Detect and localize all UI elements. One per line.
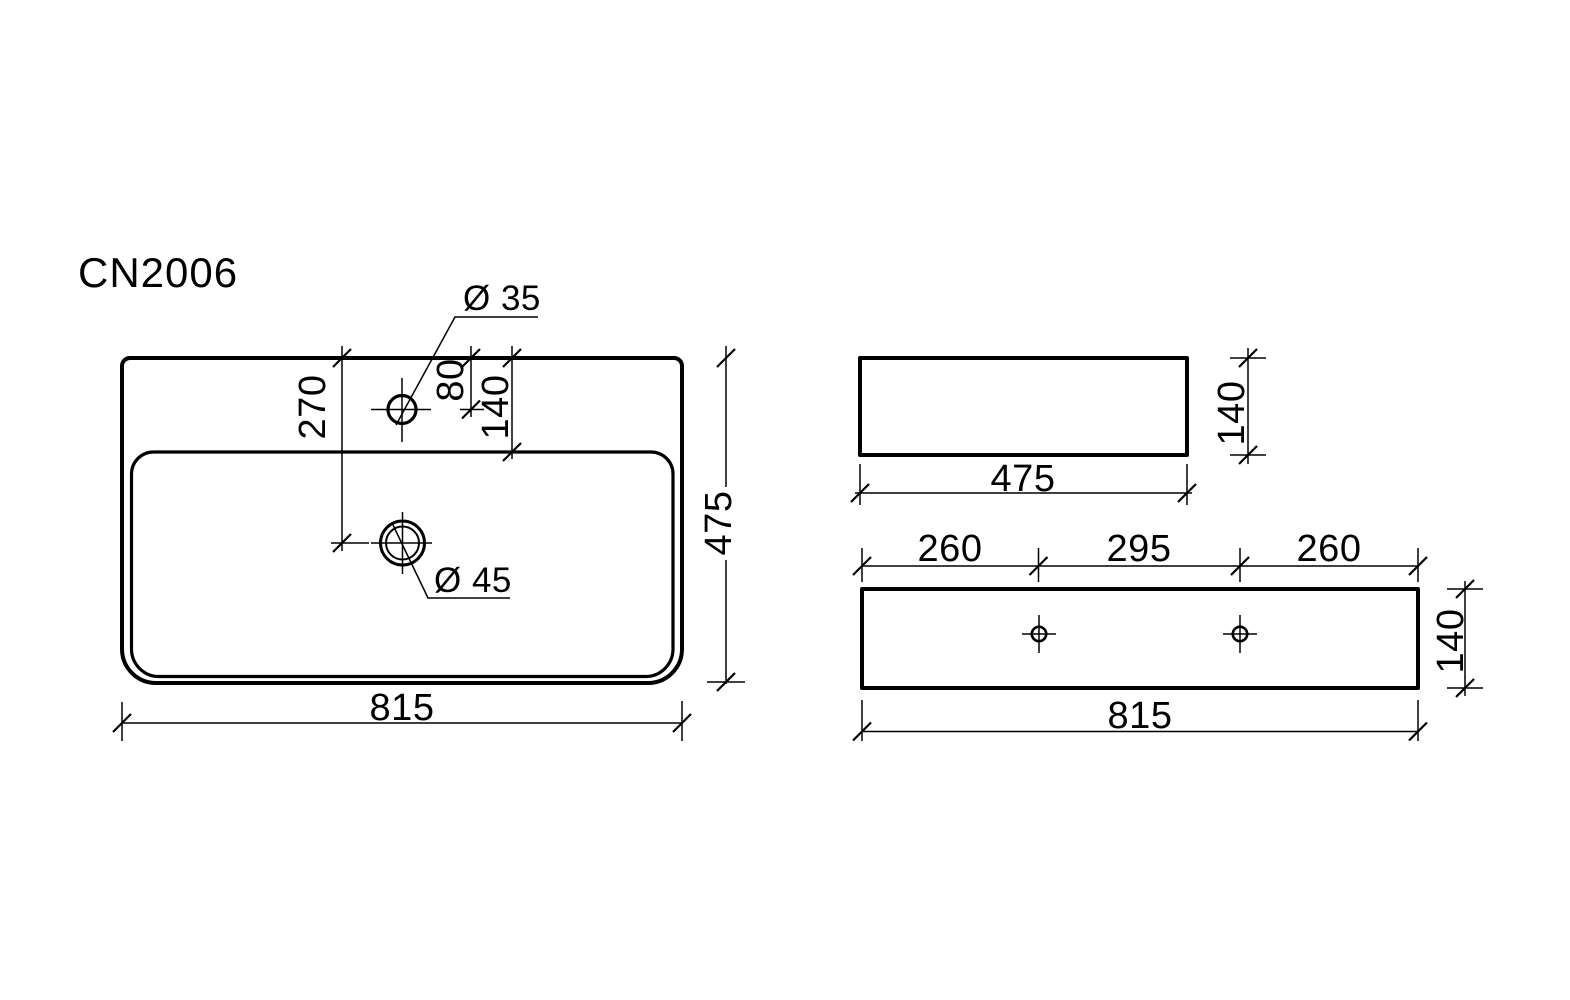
dim-label-140: 140 (1430, 609, 1472, 674)
dim-label-475: 475 (991, 458, 1056, 500)
dim-label-270: 270 (292, 375, 334, 440)
side-view: 140 475 (851, 348, 1266, 505)
dim-label-475: 475 (698, 491, 740, 556)
drain-diameter-label: Ø 45 (434, 561, 512, 600)
model-number-label: CN2006 (78, 249, 238, 296)
technical-drawing-sheet: CN2006 Ø 35 Ø 45 270 80 (0, 0, 1570, 1000)
dim-label-140: 140 (475, 375, 517, 440)
dim-label-295: 295 (1107, 528, 1172, 570)
faucet-diameter-label: Ø 35 (463, 279, 541, 318)
top-view: Ø 35 Ø 45 270 80 140 475 815 (113, 279, 745, 741)
dim-label-815: 815 (1108, 695, 1173, 737)
dim-label-140: 140 (1211, 381, 1253, 446)
dim-label-260-right: 260 (1297, 528, 1362, 570)
front-view-outline (862, 589, 1418, 688)
washbasin-dimension-drawing: CN2006 Ø 35 Ø 45 270 80 (0, 0, 1570, 1000)
dim-label-80: 80 (430, 358, 472, 401)
front-view: 260 295 260 815 140 (853, 528, 1483, 741)
side-view-outline (860, 358, 1187, 455)
dim-label-260-left: 260 (918, 528, 983, 570)
dim-label-815: 815 (370, 687, 435, 729)
